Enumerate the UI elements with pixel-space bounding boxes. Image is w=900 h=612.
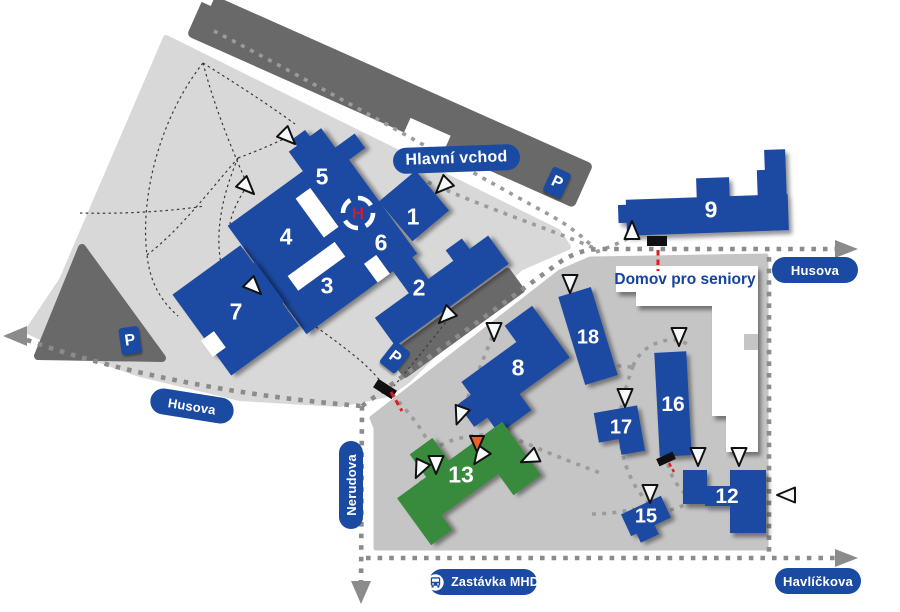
gate-icon bbox=[647, 236, 667, 246]
parking-icon: P bbox=[118, 326, 142, 356]
street-arrow-icon bbox=[835, 240, 858, 258]
bus-stop-text: Zastávka MHD bbox=[451, 575, 539, 589]
hospital-campus-map: 1 2 3 4 5 6 7 8 9 12 13 15 16 17 18 H P … bbox=[0, 0, 900, 612]
building-9 bbox=[616, 149, 789, 236]
street-label-husova-east: Husova bbox=[772, 257, 858, 283]
street-label-havlickova: Havlíčkova bbox=[775, 568, 861, 594]
bus-icon bbox=[427, 574, 444, 591]
street-arrow-icon bbox=[351, 581, 371, 604]
street-text: Husova bbox=[167, 395, 217, 417]
street-text: Nerudova bbox=[344, 454, 359, 516]
seniors-home-notch bbox=[744, 334, 758, 350]
helipad-label: H bbox=[352, 204, 364, 224]
street-text: Havlíčkova bbox=[783, 574, 853, 589]
street-arrow-icon bbox=[835, 549, 858, 567]
entrance-triangle-icon bbox=[777, 488, 795, 503]
street-arrow-icon bbox=[3, 326, 27, 346]
map-canvas bbox=[0, 0, 900, 612]
main-entrance-text: Hlavní vchod bbox=[405, 148, 508, 170]
street-label-nerudova: Nerudova bbox=[339, 441, 363, 529]
main-entrance-label: Hlavní vchod bbox=[393, 144, 521, 174]
seniors-home-label: Domov pro seniory bbox=[614, 271, 755, 289]
bus-stop-label: Zastávka MHD bbox=[429, 569, 537, 595]
building-16 bbox=[654, 351, 691, 457]
street-text: Husova bbox=[791, 263, 839, 278]
